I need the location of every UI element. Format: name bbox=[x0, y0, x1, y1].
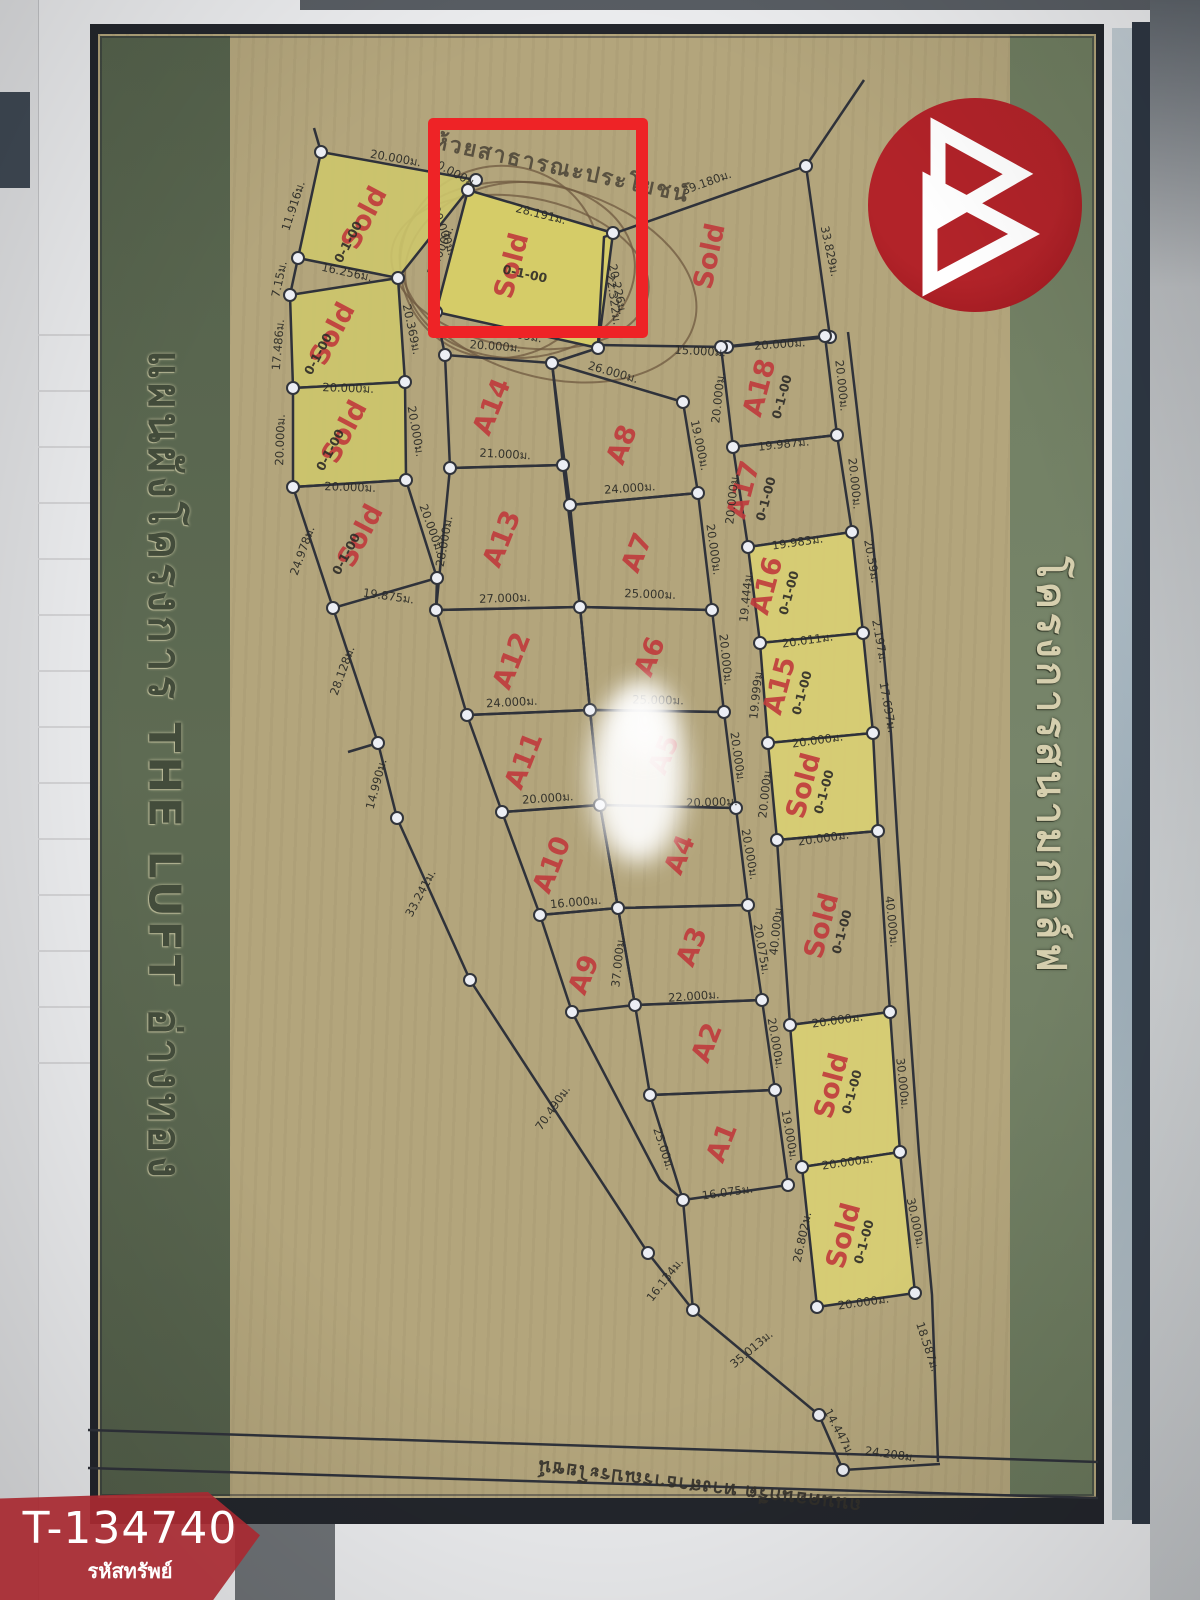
paper-left-margin bbox=[0, 0, 39, 1600]
property-code: T-134740 bbox=[23, 1505, 238, 1553]
frame-blue-edge bbox=[1112, 28, 1132, 1520]
brand-logo bbox=[868, 98, 1082, 312]
plot-map-photo: แผนผังโครงการ THE LUFT อ่างทอง โครงการสน… bbox=[0, 0, 1200, 1600]
frame-outer-line bbox=[1132, 22, 1150, 1524]
left-title-band: แผนผังโครงการ THE LUFT อ่างทอง bbox=[100, 36, 230, 1496]
golf-course-text: โครงการสนามกอล์ฟ bbox=[1020, 556, 1084, 975]
project-title-text: แผนผังโครงการ THE LUFT อ่างทอง bbox=[130, 350, 200, 1181]
brand-logo-mark bbox=[868, 98, 1082, 312]
property-code-badge: T-134740 รหัสทรัพย์ bbox=[0, 1492, 260, 1600]
highlight-rectangle bbox=[428, 118, 648, 338]
ruled-lines bbox=[38, 280, 94, 1080]
desk-right-edge bbox=[1150, 0, 1200, 1600]
desk-object bbox=[0, 92, 30, 188]
property-code-caption: รหัสทรัพย์ bbox=[88, 1555, 173, 1587]
desk-top-edge bbox=[300, 0, 1150, 10]
